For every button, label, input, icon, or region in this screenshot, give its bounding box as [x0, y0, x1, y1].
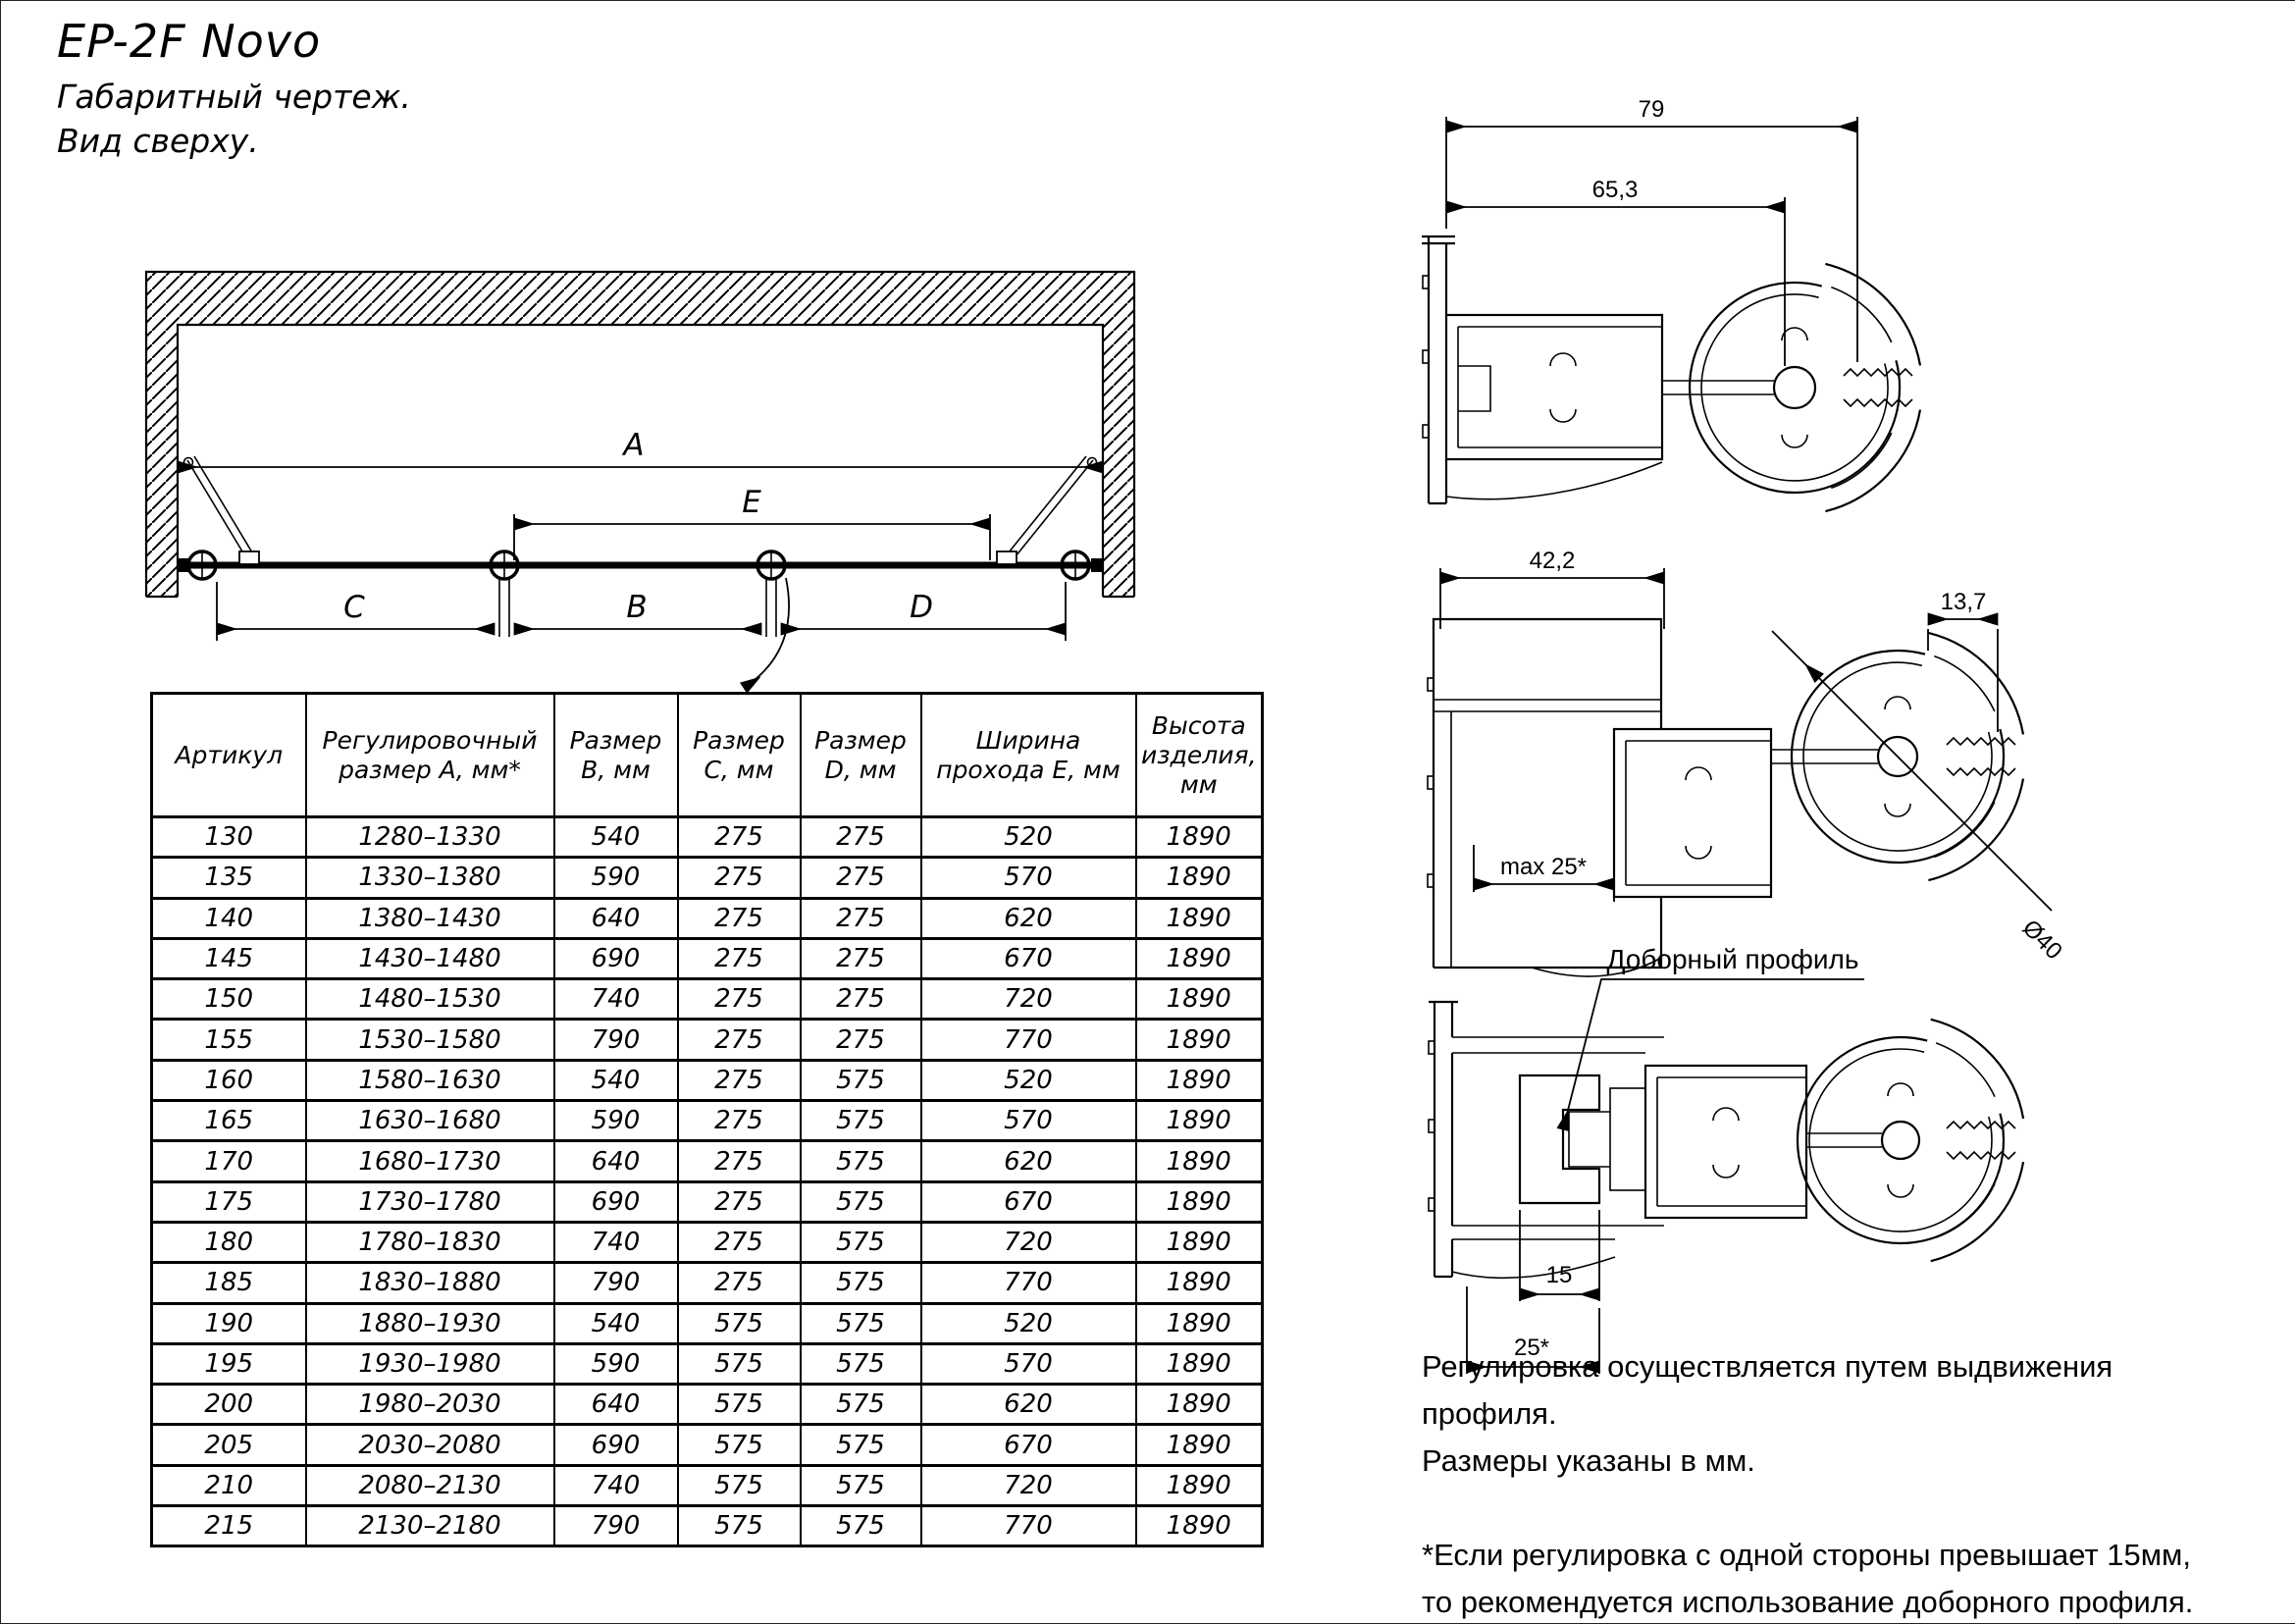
- table-cell: 215: [152, 1506, 306, 1546]
- table-cell: 790: [554, 1020, 678, 1060]
- table-cell: 275: [678, 858, 801, 898]
- page-subtitle: Габаритный чертеж.: [57, 78, 411, 116]
- table-row: 1301280–13305402752755201890: [152, 817, 1263, 858]
- table-cell: 570: [921, 1343, 1136, 1384]
- table-cell: 275: [678, 817, 801, 858]
- note-adjust-line2: Размеры указаны в мм.: [1422, 1438, 2217, 1485]
- dim-15: 15: [1520, 1210, 1599, 1301]
- table-cell: 275: [678, 1181, 801, 1222]
- profile-detail-2: 42,2 13,7 max 25*: [1428, 548, 2067, 976]
- hinge-knuckle: [1798, 1037, 2004, 1243]
- dim-d: D: [781, 582, 1066, 641]
- profile-detail-3: Доборный профиль: [1429, 944, 2023, 1374]
- table-cell: 620: [921, 898, 1136, 938]
- hinge-icon: [188, 551, 216, 579]
- table-cell: 275: [801, 1020, 921, 1060]
- table-cell: 1890: [1136, 1222, 1263, 1262]
- table-cell: 690: [554, 938, 678, 978]
- table-cell: 640: [554, 1385, 678, 1425]
- table-cell: 575: [678, 1465, 801, 1505]
- table-cell: 275: [678, 1060, 801, 1100]
- table-cell: 770: [921, 1020, 1136, 1060]
- top-view-drawing: A E C B D: [146, 272, 1134, 688]
- table-row: 1501480–15307402752757201890: [152, 979, 1263, 1020]
- table-cell: 590: [554, 1343, 678, 1384]
- table-cell: 1890: [1136, 1101, 1263, 1141]
- table-cell: 180: [152, 1222, 306, 1262]
- table-row: 1351330–13805902752755701890: [152, 858, 1263, 898]
- table-cell: 575: [801, 1141, 921, 1181]
- table-cell: 1730–1780: [306, 1181, 554, 1222]
- table-cell: 2130–2180: [306, 1506, 554, 1546]
- table-cell: 640: [554, 1141, 678, 1181]
- table-cell: 1890: [1136, 1506, 1263, 1546]
- col-header-width-e: Ширина прохода Е, мм: [921, 694, 1136, 817]
- table-cell: 275: [678, 898, 801, 938]
- table-cell: 275: [801, 938, 921, 978]
- page-title: EP-2F Novo: [57, 15, 411, 68]
- table-cell: 1330–1380: [306, 858, 554, 898]
- dim-label-c: C: [343, 590, 365, 625]
- notes-block: Регулировка осуществляется путем выдвиже…: [1422, 1343, 2217, 1624]
- table-cell: 185: [152, 1263, 306, 1303]
- dim-label-b: B: [626, 590, 647, 625]
- table-cell: 165: [152, 1101, 306, 1141]
- dim-65-3: 65,3: [1446, 177, 1785, 366]
- profile-detail-1: 79 65,3: [1422, 96, 1920, 511]
- table-row: 1801780–18307402755757201890: [152, 1222, 1263, 1262]
- table-cell: 1890: [1136, 1060, 1263, 1100]
- table-cell: 145: [152, 938, 306, 978]
- title-block: EP-2F Novo Габаритный чертеж. Вид сверху…: [57, 15, 411, 160]
- dim-c: C: [217, 582, 495, 641]
- table-cell: 575: [678, 1303, 801, 1343]
- table-cell: 1890: [1136, 1425, 1263, 1465]
- table-cell: 520: [921, 1303, 1136, 1343]
- clamp-jaws: [1928, 633, 2023, 880]
- table-cell: 575: [801, 1263, 921, 1303]
- table-cell: 195: [152, 1343, 306, 1384]
- table-cell: 275: [801, 858, 921, 898]
- table-cell: 720: [921, 979, 1136, 1020]
- table-row: 1701680–17306402755756201890: [152, 1141, 1263, 1181]
- dim-label-diameter: Ø40: [2017, 915, 2067, 965]
- table-cell: 670: [921, 1181, 1136, 1222]
- col-header-size-b: Размер В, мм: [554, 694, 678, 817]
- table-cell: 1430–1480: [306, 938, 554, 978]
- dim-label-e: E: [742, 485, 761, 520]
- table-cell: 790: [554, 1506, 678, 1546]
- dim-label-42-2: 42,2: [1530, 548, 1576, 574]
- dim-label-79: 79: [1639, 96, 1665, 123]
- table-row: 1451430–14806902752756701890: [152, 938, 1263, 978]
- table-cell: 2080–2130: [306, 1465, 554, 1505]
- table-cell: 275: [801, 817, 921, 858]
- table-cell: 1890: [1136, 858, 1263, 898]
- dim-label-a: A: [621, 428, 644, 463]
- table-cell: 275: [678, 1263, 801, 1303]
- table-cell: 1890: [1136, 1181, 1263, 1222]
- dim-13-7: 13,7: [1928, 589, 1998, 732]
- door-panel-right: [997, 456, 1097, 564]
- table-cell: 1780–1830: [306, 1222, 554, 1262]
- table-cell: 275: [678, 1020, 801, 1060]
- door-handle: [239, 551, 259, 564]
- clamp-jaws: [1931, 1020, 2023, 1261]
- table-cell: 275: [801, 979, 921, 1020]
- col-header-size-a: Регулировочный размер А, мм*: [306, 694, 554, 817]
- hinge-icon: [757, 551, 785, 579]
- table-cell: 790: [554, 1263, 678, 1303]
- table-cell: 575: [801, 1181, 921, 1222]
- table-cell: 620: [921, 1385, 1136, 1425]
- col-header-size-d: Размер D, мм: [801, 694, 921, 817]
- table-cell: 575: [801, 1465, 921, 1505]
- dim-e: E: [514, 485, 990, 560]
- door-panel-left: [184, 456, 260, 564]
- table-row: 2152130–21807905755757701890: [152, 1506, 1263, 1546]
- table-cell: 575: [801, 1385, 921, 1425]
- table-cell: 575: [801, 1506, 921, 1546]
- table-cell: 720: [921, 1222, 1136, 1262]
- table-cell: 520: [921, 817, 1136, 858]
- table-cell: 575: [801, 1303, 921, 1343]
- hinge-icon: [1062, 551, 1089, 579]
- table-cell: 740: [554, 979, 678, 1020]
- note-footnote-line2: то рекомендуется использование доборного…: [1422, 1579, 2217, 1624]
- table-cell: 160: [152, 1060, 306, 1100]
- table-cell: 575: [801, 1343, 921, 1384]
- door-handle: [997, 551, 1017, 564]
- table-cell: 130: [152, 817, 306, 858]
- dim-42-2: 42,2: [1440, 548, 1664, 629]
- table-cell: 1890: [1136, 898, 1263, 938]
- table-cell: 1890: [1136, 1020, 1263, 1060]
- table-cell: 275: [678, 1222, 801, 1262]
- dim-label-d: D: [910, 590, 933, 625]
- size-table: Артикул Регулировочный размер А, мм* Раз…: [150, 692, 1264, 1547]
- table-cell: 1890: [1136, 1141, 1263, 1181]
- table-cell: 540: [554, 817, 678, 858]
- table-cell: 520: [921, 1060, 1136, 1100]
- wall-bracket-right: [1091, 558, 1103, 572]
- note-adjust-line1: Регулировка осуществляется путем выдвиже…: [1422, 1343, 2217, 1438]
- table-cell: 1480–1530: [306, 979, 554, 1020]
- clamp-jaws: [1825, 264, 1920, 511]
- box-profile: [1446, 315, 1662, 459]
- table-cell: 575: [801, 1425, 921, 1465]
- hinge-knuckle: [1771, 651, 2004, 863]
- table-cell: 1630–1680: [306, 1101, 554, 1141]
- dim-b: B: [514, 590, 761, 629]
- table-cell: 740: [554, 1222, 678, 1262]
- table-cell: 205: [152, 1425, 306, 1465]
- hinge-knuckle: [1662, 283, 1900, 493]
- table-row: 1851830–18807902755757701890: [152, 1263, 1263, 1303]
- table-cell: 575: [678, 1506, 801, 1546]
- table-cell: 640: [554, 898, 678, 938]
- table-cell: 575: [678, 1385, 801, 1425]
- dim-label-65-3: 65,3: [1592, 177, 1639, 203]
- table-cell: 540: [554, 1303, 678, 1343]
- table-cell: 275: [801, 898, 921, 938]
- table-cell: 155: [152, 1020, 306, 1060]
- table-cell: 575: [801, 1101, 921, 1141]
- table-cell: 135: [152, 858, 306, 898]
- table-row: 2052030–20806905755756701890: [152, 1425, 1263, 1465]
- insert-profile: [1520, 1075, 1645, 1203]
- view-label: Вид сверху.: [57, 122, 411, 160]
- dim-max-25: max 25*: [1474, 845, 1614, 902]
- wall-profile: [1429, 1002, 1664, 1278]
- table-cell: 1890: [1136, 979, 1263, 1020]
- table-cell: 670: [921, 1425, 1136, 1465]
- table-cell: 540: [554, 1060, 678, 1100]
- panel-stem-left: [499, 579, 509, 637]
- table-cell: 720: [921, 1465, 1136, 1505]
- table-cell: 275: [678, 1101, 801, 1141]
- table-cell: 690: [554, 1181, 678, 1222]
- table-cell: 1530–1580: [306, 1020, 554, 1060]
- table-cell: 275: [678, 938, 801, 978]
- table-cell: 1830–1880: [306, 1263, 554, 1303]
- table-cell: 1890: [1136, 1303, 1263, 1343]
- table-cell: 1890: [1136, 938, 1263, 978]
- dim-a: A: [178, 428, 1103, 467]
- table-row: 1601580–16305402755755201890: [152, 1060, 1263, 1100]
- table-cell: 175: [152, 1181, 306, 1222]
- box-profile: [1645, 1066, 1806, 1218]
- table-cell: 575: [801, 1222, 921, 1262]
- table-cell: 575: [678, 1343, 801, 1384]
- table-row: 1651630–16805902755755701890: [152, 1101, 1263, 1141]
- table-row: 1401380–14306402752756201890: [152, 898, 1263, 938]
- table-cell: 590: [554, 858, 678, 898]
- table-cell: 1890: [1136, 1343, 1263, 1384]
- table-cell: 570: [921, 1101, 1136, 1141]
- table-cell: 140: [152, 898, 306, 938]
- table-cell: 1980–2030: [306, 1385, 554, 1425]
- table-row: 2001980–20306405755756201890: [152, 1385, 1263, 1425]
- table-cell: 670: [921, 938, 1136, 978]
- table-cell: 590: [554, 1101, 678, 1141]
- dim-79: 79: [1446, 96, 1857, 362]
- table-cell: 620: [921, 1141, 1136, 1181]
- table-cell: 690: [554, 1425, 678, 1465]
- table-cell: 1280–1330: [306, 817, 554, 858]
- col-header-articul: Артикул: [152, 694, 306, 817]
- table-cell: 210: [152, 1465, 306, 1505]
- dim-label-13-7: 13,7: [1941, 589, 1987, 615]
- table-row: 2102080–21307405755757201890: [152, 1465, 1263, 1505]
- table-cell: 1930–1980: [306, 1343, 554, 1384]
- dim-label-max-25: max 25*: [1500, 854, 1587, 880]
- table-cell: 200: [152, 1385, 306, 1425]
- table-header-row: Артикул Регулировочный размер А, мм* Раз…: [152, 694, 1263, 817]
- table-cell: 1890: [1136, 1263, 1263, 1303]
- table-cell: 740: [554, 1465, 678, 1505]
- table-cell: 275: [678, 979, 801, 1020]
- callout-label: Доборный профиль: [1607, 944, 1859, 974]
- table-cell: 1890: [1136, 1385, 1263, 1425]
- table-cell: 575: [801, 1060, 921, 1100]
- table-row: 1901880–19305405755755201890: [152, 1303, 1263, 1343]
- box-profile: [1614, 729, 1771, 897]
- table-cell: 150: [152, 979, 306, 1020]
- note-footnote-line1: *Если регулировка с одной стороны превыш…: [1422, 1532, 2217, 1579]
- table-cell: 770: [921, 1263, 1136, 1303]
- table-row: 1551530–15807902752757701890: [152, 1020, 1263, 1060]
- table-cell: 190: [152, 1303, 306, 1343]
- table-cell: 275: [678, 1141, 801, 1181]
- size-table-body: 1301280–133054027527552018901351330–1380…: [152, 817, 1263, 1546]
- dim-label-15: 15: [1546, 1262, 1573, 1288]
- table-cell: 1890: [1136, 817, 1263, 858]
- table-row: 1951930–19805905755755701890: [152, 1343, 1263, 1384]
- dim-diameter-40: Ø40: [1772, 631, 2067, 965]
- col-header-height: Высота изделия, мм: [1136, 694, 1263, 817]
- table-row: 1751730–17806902755756701890: [152, 1181, 1263, 1222]
- panel-stem-right: [766, 579, 776, 637]
- table-cell: 1580–1630: [306, 1060, 554, 1100]
- col-header-size-c: Размер С, мм: [678, 694, 801, 817]
- drawing-sheet: A E C B D: [0, 0, 2295, 1624]
- table-cell: 570: [921, 858, 1136, 898]
- table-cell: 575: [678, 1425, 801, 1465]
- table-cell: 1680–1730: [306, 1141, 554, 1181]
- table-cell: 1880–1930: [306, 1303, 554, 1343]
- table-cell: 170: [152, 1141, 306, 1181]
- table-cell: 1380–1430: [306, 898, 554, 938]
- table-cell: 2030–2080: [306, 1425, 554, 1465]
- table-cell: 770: [921, 1506, 1136, 1546]
- table-cell: 1890: [1136, 1465, 1263, 1505]
